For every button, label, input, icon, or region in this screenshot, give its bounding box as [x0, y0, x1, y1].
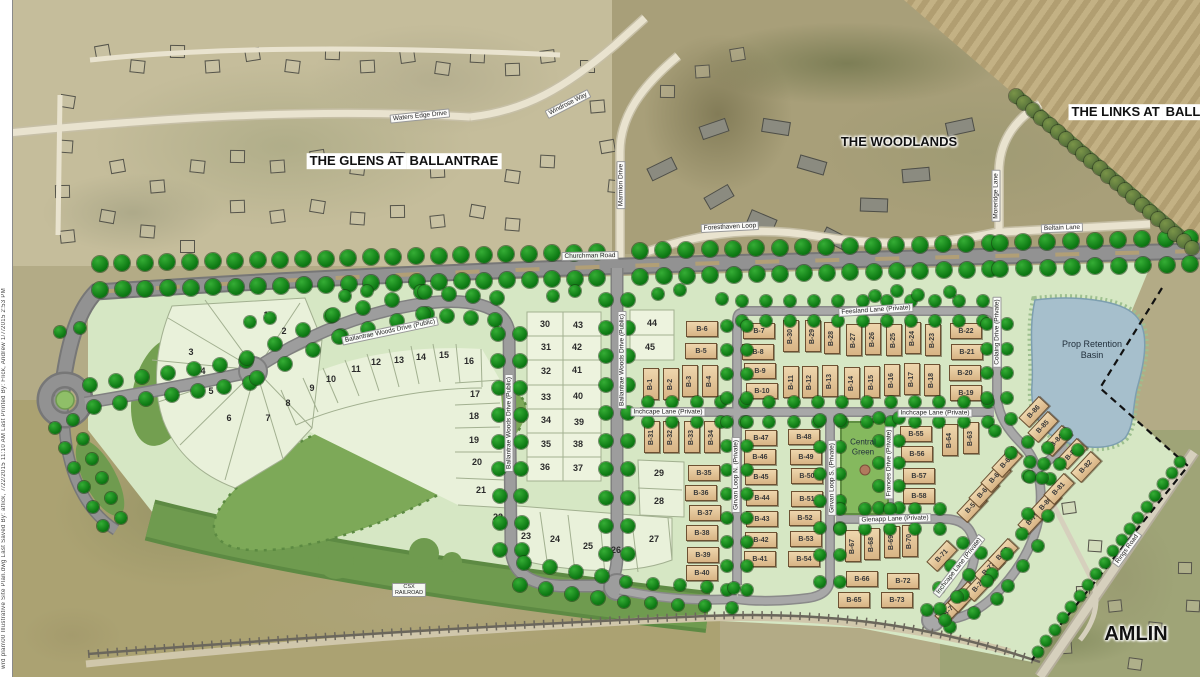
tree-icon	[87, 501, 99, 513]
b-lot-label: B-12	[807, 374, 814, 389]
lot-number: 8	[285, 398, 290, 408]
tree-icon	[515, 543, 529, 557]
tree-icon	[599, 547, 613, 561]
tree-icon	[642, 396, 654, 408]
lot-number: 41	[572, 365, 582, 375]
tree-icon	[741, 320, 753, 332]
tree-icon	[1110, 232, 1126, 248]
tree-icon	[721, 560, 733, 572]
tree-icon	[741, 512, 753, 524]
b-lot-label: B-73	[889, 597, 904, 604]
tree-icon	[1058, 613, 1069, 624]
tree-icon	[992, 261, 1008, 277]
tree-icon	[869, 290, 881, 302]
tree-icon	[569, 565, 583, 579]
tree-icon	[691, 416, 703, 428]
area-label-line: BALLANTRAE	[407, 153, 502, 169]
tree-icon	[842, 264, 858, 280]
tree-icon	[296, 277, 312, 293]
tree-icon	[741, 536, 753, 548]
tree-icon	[912, 289, 924, 301]
tree-icon	[721, 392, 733, 404]
tree-icon	[1001, 392, 1013, 404]
tree-icon	[741, 464, 753, 476]
tree-icon	[981, 575, 993, 587]
tree-icon	[513, 327, 527, 341]
tree-icon	[1039, 234, 1055, 250]
tree-icon	[250, 278, 266, 294]
tree-icon	[92, 282, 108, 298]
b-lot-label: B-30	[788, 328, 795, 343]
b-lot: B-13	[822, 365, 838, 397]
tree-icon	[645, 597, 657, 609]
tree-icon	[721, 320, 733, 332]
tree-icon	[491, 354, 505, 368]
tree-icon	[135, 370, 149, 384]
lot-number: 10	[326, 374, 336, 384]
tree-icon	[1001, 548, 1013, 560]
tree-icon	[498, 246, 514, 262]
b-lot-label: B-56	[909, 451, 924, 458]
b-lot-label: B-4	[707, 375, 714, 386]
tree-icon	[318, 277, 334, 293]
tree-icon	[240, 351, 254, 365]
tree-icon	[921, 604, 933, 616]
tree-icon	[834, 549, 846, 561]
site-label-line: Prop Retention	[1062, 339, 1122, 350]
tree-icon	[834, 414, 846, 426]
tree-icon	[1064, 259, 1080, 275]
tree-icon	[466, 289, 480, 303]
tree-icon	[599, 491, 613, 505]
tree-icon	[499, 272, 515, 288]
tree-icon	[1185, 241, 1199, 255]
tree-icon	[513, 354, 527, 368]
tree-icon	[105, 492, 117, 504]
b-lot-label: B-53	[798, 536, 813, 543]
site-label-line: Green	[850, 447, 876, 457]
tree-icon	[889, 263, 905, 279]
tree-icon	[893, 457, 905, 469]
b-lot: B-3	[682, 365, 698, 397]
tree-icon	[632, 269, 648, 285]
road-label-line: RAILROAD	[395, 590, 423, 596]
b-lot-label: B-72	[895, 578, 910, 585]
tree-icon	[725, 241, 741, 257]
tree-icon	[951, 591, 963, 603]
tree-icon	[77, 433, 89, 445]
b-lot-label: B-36	[693, 490, 708, 497]
tree-icon	[741, 488, 753, 500]
b-lot-label: B-38	[694, 530, 709, 537]
tree-icon	[699, 600, 711, 612]
tree-icon	[161, 366, 175, 380]
b-lot-label: B-31	[649, 429, 656, 444]
tree-icon	[814, 468, 826, 480]
tree-icon	[547, 290, 559, 302]
tree-icon	[632, 243, 648, 259]
tree-icon	[701, 581, 713, 593]
b-lot-label: B-50	[799, 473, 814, 480]
tree-icon	[968, 607, 980, 619]
b-lot: B-26	[865, 323, 881, 355]
tree-icon	[772, 266, 788, 282]
b-lot-label: B-69	[889, 534, 896, 549]
tree-icon	[814, 495, 826, 507]
tree-icon	[716, 293, 728, 305]
lot-number: 38	[573, 439, 583, 449]
tree-icon	[679, 268, 695, 284]
tree-icon	[859, 523, 871, 535]
b-lot: B-65	[838, 592, 870, 608]
tree-icon	[1133, 512, 1144, 523]
site-plan-map: wrd plan\00 Illustrative Site Plan.dwg L…	[0, 0, 1200, 677]
tree-icon	[857, 315, 869, 327]
lot-number: 25	[583, 541, 593, 551]
lot-number: 18	[469, 411, 479, 421]
tree-icon	[741, 344, 753, 356]
tree-icon	[1175, 457, 1186, 468]
tree-icon	[139, 392, 153, 406]
tree-icon	[953, 295, 965, 307]
tree-icon	[544, 245, 560, 261]
lot-number: 19	[469, 435, 479, 445]
tree-icon	[339, 290, 351, 302]
tree-icon	[933, 396, 945, 408]
tree-icon	[909, 396, 921, 408]
b-lot-label: B-51	[799, 496, 814, 503]
road-label: Ballantrae Woods Drive (Public)	[618, 311, 627, 409]
tree-icon	[1042, 510, 1054, 522]
b-lot: B-18	[924, 364, 940, 396]
b-lot-label: B-14	[849, 375, 856, 390]
tree-icon	[741, 440, 753, 452]
tree-icon	[814, 441, 826, 453]
tree-icon	[78, 481, 90, 493]
road-label: Inchcape Lane (Private)	[897, 409, 972, 418]
tree-icon	[87, 400, 101, 414]
b-lot: B-11	[783, 366, 799, 398]
lot-number: 11	[351, 364, 361, 374]
road-label: Moreridge Lane	[992, 170, 1001, 222]
tree-icon	[1066, 602, 1077, 613]
road-label: Inchcape Lane (Private)	[630, 408, 705, 417]
lot-number: 17	[470, 389, 480, 399]
tree-icon	[873, 412, 885, 424]
tree-icon	[784, 295, 796, 307]
tree-icon	[492, 381, 506, 395]
tree-icon	[691, 396, 703, 408]
tree-icon	[385, 249, 401, 265]
lot-number: 37	[573, 463, 583, 473]
tree-icon	[114, 255, 130, 271]
b-lot-label: B-27	[851, 332, 858, 347]
tree-icon	[884, 523, 896, 535]
tree-icon	[958, 416, 970, 428]
b-lot: B-38	[686, 525, 718, 541]
tree-icon	[599, 378, 613, 392]
tree-icon	[796, 265, 812, 281]
b-lot: B-39	[687, 547, 719, 563]
b-lot-label: B-6	[696, 326, 707, 333]
b-lot: B-58	[903, 488, 935, 504]
tree-icon	[599, 321, 613, 335]
tree-icon	[250, 252, 266, 268]
road-label: CSXRAILROAD	[392, 583, 426, 597]
tree-icon	[514, 462, 528, 476]
tree-icon	[788, 416, 800, 428]
tree-icon	[912, 263, 928, 279]
tree-icon	[991, 593, 1003, 605]
tree-icon	[1087, 258, 1103, 274]
tree-icon	[493, 516, 507, 530]
tree-icon	[621, 293, 635, 307]
tree-icon	[1158, 479, 1169, 490]
site-label-line: Central	[850, 437, 876, 447]
b-lot-label: B-5	[695, 348, 706, 355]
fountain-icon	[859, 464, 870, 475]
tree-icon	[83, 378, 97, 392]
tree-icon	[772, 240, 788, 256]
tree-icon	[1182, 256, 1198, 272]
b-lot-label: B-57	[911, 473, 926, 480]
tree-icon	[137, 255, 153, 271]
b-lot: B-56	[901, 446, 933, 462]
tree-icon	[741, 560, 753, 572]
lot-number: 6	[226, 413, 231, 423]
b-lot-label: B-25	[891, 332, 898, 347]
tree-icon	[97, 520, 109, 532]
tree-icon	[834, 576, 846, 588]
tree-icon	[488, 313, 502, 327]
b-lot-label: B-64	[947, 432, 954, 447]
tree-icon	[74, 322, 86, 334]
tree-icon	[981, 343, 993, 355]
tree-icon	[1049, 624, 1060, 635]
site-label-line: Basin	[1062, 350, 1122, 361]
tree-icon	[836, 396, 848, 408]
tree-icon	[814, 414, 826, 426]
b-lot-label: B-8	[752, 349, 763, 356]
tree-icon	[476, 247, 492, 263]
b-lot: B-73	[881, 592, 913, 608]
tree-icon	[453, 247, 469, 263]
tree-icon	[909, 416, 921, 428]
tree-icon	[893, 435, 905, 447]
b-lot: B-57	[903, 468, 935, 484]
tree-icon	[642, 416, 654, 428]
b-lot: B-20	[949, 365, 981, 381]
sheet-margin: wrd plan\00 Illustrative Site Plan.dwg L…	[0, 0, 13, 677]
tree-icon	[726, 267, 742, 283]
tree-icon	[1060, 428, 1072, 440]
tree-icon	[656, 268, 672, 284]
tree-icon	[977, 295, 989, 307]
tree-icon	[183, 280, 199, 296]
tree-icon	[490, 291, 504, 305]
road-label: Ballantrae Woods Drive (Public)	[505, 374, 514, 472]
area-label-woodlands: THE WOODLANDS	[841, 134, 957, 150]
tree-icon	[544, 271, 560, 287]
b-lot: B-72	[887, 573, 919, 589]
lot-number: 33	[541, 392, 551, 402]
tree-icon	[819, 265, 835, 281]
tree-icon	[159, 254, 175, 270]
lot-number: 39	[574, 417, 584, 427]
b-lot: B-25	[886, 324, 902, 356]
b-lot: B-1	[643, 368, 659, 400]
tree-icon	[385, 293, 399, 307]
tree-icon	[721, 368, 733, 380]
tree-icon	[599, 349, 613, 363]
tree-icon	[599, 462, 613, 476]
tree-icon	[620, 576, 632, 588]
tree-icon	[748, 240, 764, 256]
lot-number: 44	[647, 318, 657, 328]
b-lot-label: B-7	[753, 328, 764, 335]
tree-icon	[454, 273, 470, 289]
tree-icon	[812, 396, 824, 408]
tree-icon	[702, 241, 718, 257]
b-lot-label: B-10	[754, 388, 769, 395]
area-label-links: THE LINKS ATBALLANTRAE	[1069, 104, 1200, 120]
tree-icon	[958, 396, 970, 408]
b-lot-label: B-28	[829, 330, 836, 345]
tree-icon	[992, 235, 1008, 251]
tree-icon	[1033, 647, 1044, 658]
tree-icon	[493, 543, 507, 557]
tree-icon	[513, 381, 527, 395]
road-label: Colaing Drive (Private)	[993, 296, 1002, 367]
b-lot-label: B-35	[696, 470, 711, 477]
tree-icon	[517, 556, 531, 570]
lot-number: 5	[208, 386, 213, 396]
tree-icon	[363, 249, 379, 265]
tree-icon	[1001, 343, 1013, 355]
tree-icon	[621, 547, 635, 561]
tree-icon	[721, 344, 733, 356]
tree-icon	[1016, 528, 1028, 540]
site-label-central-green: CentralGreen	[850, 437, 876, 456]
tree-icon	[873, 457, 885, 469]
tree-icon	[929, 315, 941, 327]
tree-icon	[741, 416, 753, 428]
road-label: Girvan Loop N. (Private)	[732, 437, 741, 513]
tree-icon	[513, 578, 527, 592]
tree-icon	[958, 236, 974, 252]
lot-number: 21	[476, 485, 486, 495]
tree-icon	[655, 242, 671, 258]
tree-icon	[599, 519, 613, 533]
lot-number: 2	[281, 326, 286, 336]
b-lot: B-4	[702, 365, 718, 397]
b-lot-label: B-43	[754, 516, 769, 523]
b-lot-label: B-45	[753, 474, 768, 481]
tree-icon	[228, 279, 244, 295]
b-lot: B-67	[845, 530, 861, 562]
lot-number: 9	[309, 383, 314, 393]
tree-icon	[440, 309, 454, 323]
tree-icon	[888, 237, 904, 253]
tree-icon	[306, 343, 320, 357]
tree-icon	[1040, 260, 1056, 276]
b-lot-label: B-9	[754, 368, 765, 375]
tree-icon	[652, 288, 664, 300]
b-lot-label: B-49	[798, 454, 813, 461]
lot-number: 16	[464, 356, 474, 366]
tree-icon	[442, 287, 456, 301]
b-lot: B-15	[864, 366, 880, 398]
road-label: Beltain Lane	[1041, 223, 1083, 233]
area-label-glens: THE GLENS ATBALLANTRAE	[307, 153, 502, 169]
tree-icon	[59, 442, 71, 454]
tree-icon	[476, 273, 492, 289]
tree-icon	[721, 416, 733, 428]
b-lot-label: B-16	[889, 372, 896, 387]
lot-number: 20	[472, 457, 482, 467]
tree-icon	[1099, 557, 1110, 568]
b-lot-label: B-24	[910, 330, 917, 345]
lot-number: 42	[572, 342, 582, 352]
tree-icon	[1091, 568, 1102, 579]
tree-icon	[621, 434, 635, 448]
tree-icon	[944, 286, 956, 298]
lot-number: 30	[540, 319, 550, 329]
tree-icon	[674, 579, 686, 591]
b-lot: B-16	[884, 364, 900, 396]
b-lot-label: B-13	[827, 373, 834, 388]
tree-icon	[959, 262, 975, 278]
tree-icon	[784, 315, 796, 327]
tree-icon	[160, 280, 176, 296]
area-label-line: BALLANTRAE	[1163, 104, 1200, 120]
tree-icon	[873, 480, 885, 492]
b-lot: B-40	[686, 565, 718, 581]
tree-icon	[165, 388, 179, 402]
b-lot-label: B-15	[869, 374, 876, 389]
tree-icon	[599, 293, 613, 307]
tree-icon	[264, 312, 276, 324]
b-lot-label: B-23	[930, 332, 937, 347]
tree-icon	[361, 285, 373, 297]
tree-icon	[728, 582, 740, 594]
tree-icon	[589, 270, 605, 286]
tree-icon	[68, 462, 80, 474]
tree-icon	[666, 396, 678, 408]
b-lot-label: B-18	[929, 372, 936, 387]
tree-icon	[1036, 472, 1048, 484]
tree-icon	[721, 512, 733, 524]
tree-icon	[1063, 233, 1079, 249]
tree-icon	[514, 408, 528, 422]
tree-icon	[865, 238, 881, 254]
b-lot-label: B-17	[909, 371, 916, 386]
tree-icon	[909, 523, 921, 535]
tree-icon	[1005, 447, 1017, 459]
tree-icon	[1001, 318, 1013, 330]
tree-icon	[539, 582, 553, 596]
b-lot-label: B-3	[687, 375, 694, 386]
lot-number: 32	[541, 366, 551, 376]
tree-icon	[565, 587, 579, 601]
b-lot: B-24	[905, 322, 921, 354]
tree-icon	[1032, 540, 1044, 552]
area-label-amlin: AMLIN	[1104, 622, 1167, 646]
tree-icon	[1038, 458, 1050, 470]
tree-icon	[464, 311, 478, 325]
b-lot-label: B-2	[668, 378, 675, 389]
tree-icon	[1083, 579, 1094, 590]
